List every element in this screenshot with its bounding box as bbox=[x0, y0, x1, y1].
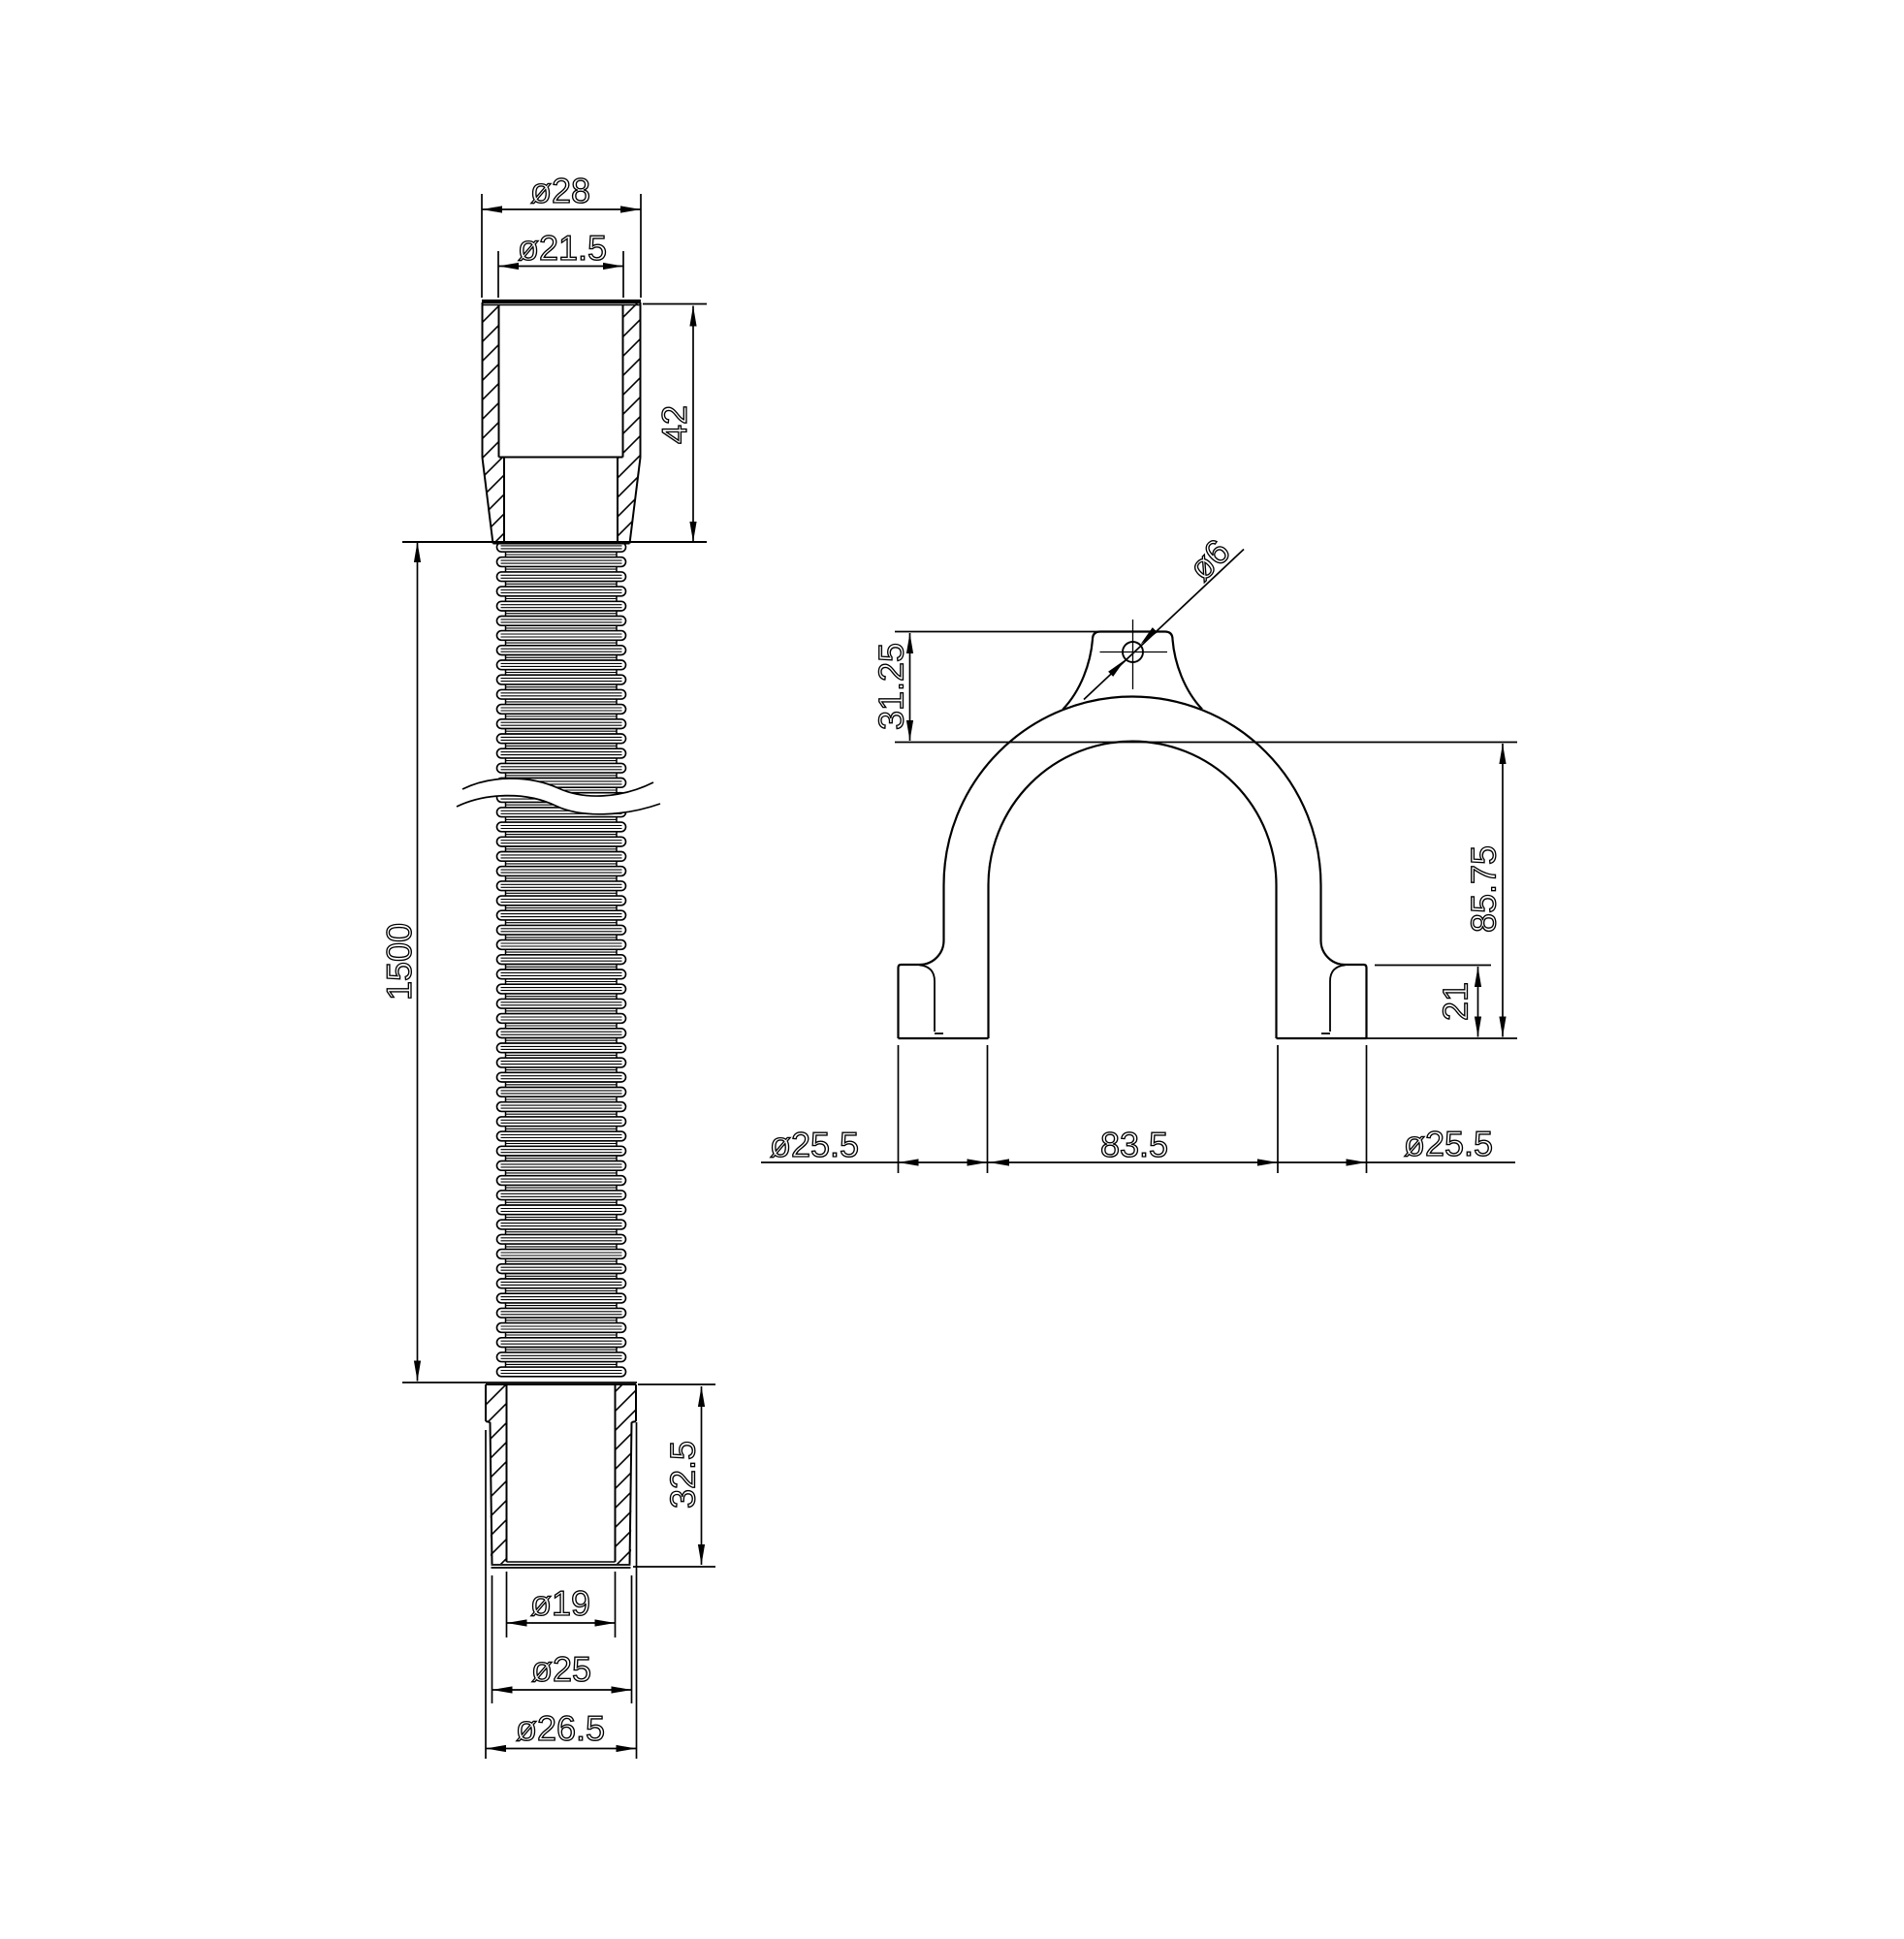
svg-text:ø19: ø19 bbox=[530, 1583, 590, 1623]
svg-text:ø25.5: ø25.5 bbox=[770, 1125, 859, 1164]
svg-text:85.75: 85.75 bbox=[1463, 845, 1503, 933]
svg-text:ø6: ø6 bbox=[1181, 531, 1238, 588]
svg-text:ø28: ø28 bbox=[530, 171, 590, 210]
svg-text:83.5: 83.5 bbox=[1100, 1125, 1168, 1164]
svg-text:ø26.5: ø26.5 bbox=[516, 1708, 605, 1748]
svg-text:ø25.5: ø25.5 bbox=[1404, 1124, 1493, 1163]
svg-text:ø21.5: ø21.5 bbox=[518, 228, 607, 268]
svg-text:1500: 1500 bbox=[379, 923, 419, 1001]
svg-text:32.5: 32.5 bbox=[662, 1441, 702, 1509]
svg-text:31.25: 31.25 bbox=[871, 643, 910, 730]
svg-text:42: 42 bbox=[654, 405, 694, 444]
svg-text:21: 21 bbox=[1435, 982, 1475, 1021]
svg-text:ø25: ø25 bbox=[531, 1649, 591, 1689]
